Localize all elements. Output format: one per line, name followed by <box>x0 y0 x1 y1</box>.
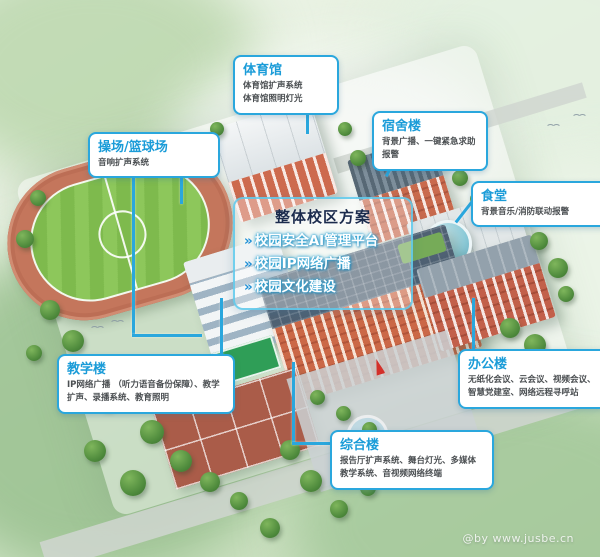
callout-teaching: 教学楼 IP网络广播 （听力语音备份保障）、教学扩声、录播系统、教育照明 <box>57 354 235 414</box>
tree <box>300 470 322 492</box>
overall-plan-title: 整体校区方案 <box>244 206 402 227</box>
tree <box>530 232 548 250</box>
tree <box>350 150 366 166</box>
callout-complex-title: 综合楼 <box>340 437 484 455</box>
connector-playground-courts-vertical <box>132 170 135 336</box>
tree <box>26 345 42 361</box>
connector-complex-vertical <box>292 362 295 444</box>
tree <box>84 440 106 462</box>
callout-gym: 体育馆 体育馆扩声系统 体育馆照明灯光 <box>233 55 339 115</box>
connector-complex-horizontal <box>292 442 334 445</box>
chevron-icon: » <box>244 279 253 295</box>
tree <box>330 500 348 518</box>
plan-item-ai-platform: »校园安全AI管理平台 <box>244 230 402 253</box>
callout-gym-title: 体育馆 <box>243 62 329 80</box>
tree <box>200 472 220 492</box>
callout-teaching-title: 教学楼 <box>67 361 225 379</box>
chevron-icon: » <box>244 256 253 272</box>
plan-item-ip-broadcast: »校园IP网络广播 <box>244 253 402 276</box>
callout-office-desc: 无纸化会议、云会议、视频会议、智慧党建室、网络远程寻呼站 <box>468 374 598 401</box>
bird-icon <box>90 326 103 332</box>
tree <box>500 318 520 338</box>
plan-item-culture: »校园文化建设 <box>244 276 402 299</box>
connector-playground-courts-horizontal <box>132 334 202 337</box>
plan-item-label: 校园文化建设 <box>255 279 336 295</box>
callout-teaching-desc: IP网络广播 （听力语音备份保障）、教学扩声、录播系统、教育照明 <box>67 379 225 406</box>
callout-dorm-title: 宿舍楼 <box>382 118 478 136</box>
callout-dorm-desc: 背景广播、一键紧急求助报警 <box>382 136 478 163</box>
callout-playground: 操场/篮球场 音响扩声系统 <box>88 132 220 178</box>
tree <box>230 492 248 510</box>
tree <box>452 170 468 186</box>
tree <box>40 300 60 320</box>
callout-dorm: 宿舍楼 背景广播、一键紧急求助报警 <box>372 111 488 171</box>
bird-icon <box>110 320 123 326</box>
callout-complex-desc: 报告厅扩声系统、舞台灯光、多媒体教学系统、音视频网络终端 <box>340 455 484 482</box>
watermark: @by www.jusbe.cn <box>463 532 575 545</box>
tree <box>30 190 46 206</box>
tree <box>260 518 280 538</box>
tree <box>338 122 352 136</box>
tree <box>310 390 325 405</box>
callout-office-title: 办公楼 <box>468 356 598 374</box>
connector-office <box>472 298 475 351</box>
callout-gym-desc: 体育馆扩声系统 体育馆照明灯光 <box>243 80 329 107</box>
overall-plan-panel: 整体校区方案 »校园安全AI管理平台 »校园IP网络广播 »校园文化建设 <box>233 197 413 310</box>
callout-playground-title: 操场/篮球场 <box>98 139 210 157</box>
bird-icon <box>546 124 559 130</box>
tree <box>120 470 146 496</box>
callout-complex: 综合楼 报告厅扩声系统、舞台灯光、多媒体教学系统、音视频网络终端 <box>330 430 494 490</box>
tree <box>170 450 192 472</box>
tree <box>336 406 351 421</box>
plan-item-label: 校园安全AI管理平台 <box>255 233 378 249</box>
callout-canteen-title: 食堂 <box>481 188 600 206</box>
campus-infographic: 体育馆 体育馆扩声系统 体育馆照明灯光 操场/篮球场 音响扩声系统 宿舍楼 背景… <box>0 0 600 557</box>
callout-office: 办公楼 无纸化会议、云会议、视频会议、智慧党建室、网络远程寻呼站 <box>458 349 600 409</box>
tree <box>62 330 84 352</box>
tree <box>140 420 164 444</box>
chevron-icon: » <box>244 233 253 249</box>
bird-icon <box>572 114 585 120</box>
tree <box>558 286 574 302</box>
tree <box>16 230 34 248</box>
callout-canteen: 食堂 背景音乐/消防联动报警 <box>471 181 600 227</box>
tree <box>548 258 568 278</box>
callout-canteen-desc: 背景音乐/消防联动报警 <box>481 206 600 220</box>
callout-playground-desc: 音响扩声系统 <box>98 157 210 171</box>
plan-item-label: 校园IP网络广播 <box>255 256 351 272</box>
